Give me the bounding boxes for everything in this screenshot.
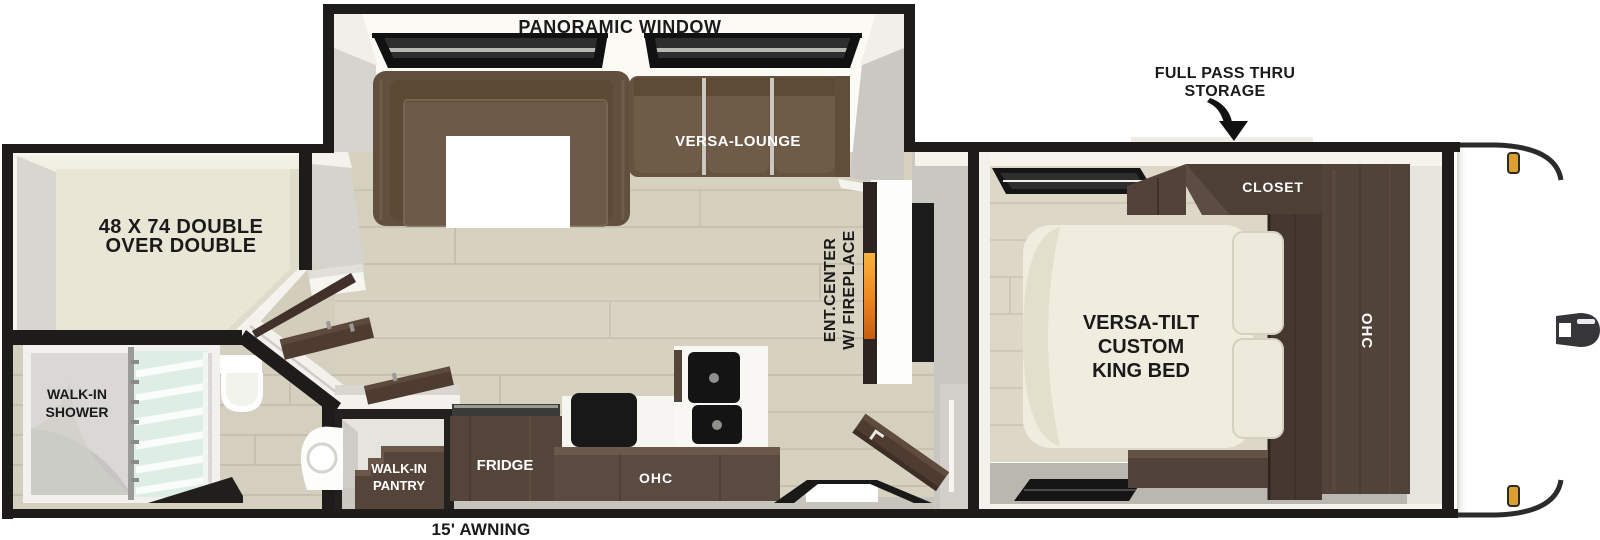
svg-text:WALK-IN: WALK-IN xyxy=(47,386,107,402)
svg-text:SHOWER: SHOWER xyxy=(46,404,109,420)
svg-text:VERSA-TILT: VERSA-TILT xyxy=(1083,312,1199,334)
svg-text:CLOSET: CLOSET xyxy=(1242,179,1304,195)
svg-text:KING BED: KING BED xyxy=(1092,360,1190,382)
svg-text:PANORAMIC WINDOW: PANORAMIC WINDOW xyxy=(518,17,721,37)
svg-text:FULL PASS THRU: FULL PASS THRU xyxy=(1155,65,1296,82)
svg-text:CUSTOM: CUSTOM xyxy=(1098,336,1184,358)
svg-text:15' AWNING: 15' AWNING xyxy=(432,520,531,539)
svg-text:WALK-IN: WALK-IN xyxy=(371,461,427,476)
svg-text:FRIDGE: FRIDGE xyxy=(477,457,534,474)
svg-text:PANTRY: PANTRY xyxy=(373,478,425,493)
svg-text:OVER DOUBLE: OVER DOUBLE xyxy=(105,235,256,257)
svg-text:STORAGE: STORAGE xyxy=(1185,83,1266,100)
svg-text:ENT.CENTER: ENT.CENTER xyxy=(822,238,839,342)
svg-text:OHC: OHC xyxy=(1358,313,1375,349)
svg-text:VERSA-LOUNGE: VERSA-LOUNGE xyxy=(675,133,801,150)
svg-text:W/ FIREPLACE: W/ FIREPLACE xyxy=(841,230,858,349)
svg-text:OHC: OHC xyxy=(639,470,673,486)
